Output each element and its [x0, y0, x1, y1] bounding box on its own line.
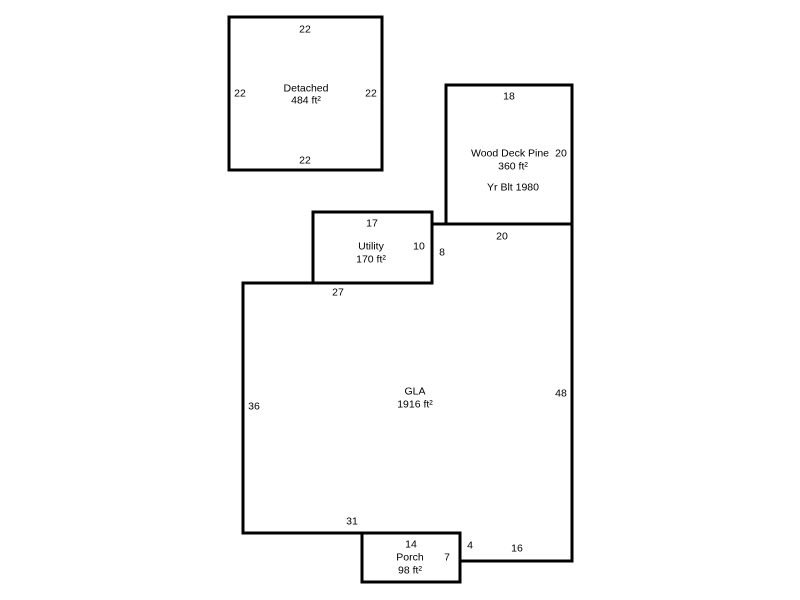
gla-dim-bottom-left: 31 — [346, 516, 358, 529]
gla-dim-step-down: 4 — [467, 540, 473, 553]
utility-dim-right: 10 — [413, 241, 425, 254]
gla-dim-bottom-right: 16 — [511, 543, 523, 556]
porch-dim-top: 14 — [405, 539, 417, 552]
gla-dim-right: 48 — [555, 388, 567, 401]
sketch-canvas — [0, 0, 800, 600]
gla-dim-left: 36 — [248, 401, 260, 414]
wood-deck-dim-top: 18 — [503, 91, 515, 104]
detached-dim-bottom: 22 — [299, 155, 311, 168]
detached-dim-top: 22 — [299, 24, 311, 37]
porch-dim-right: 7 — [444, 552, 450, 565]
gla-dim-step-up: 8 — [439, 247, 445, 260]
gla-dim-top-left: 27 — [332, 287, 344, 300]
wood-deck-year-note: Yr Blt 1980 — [487, 182, 539, 195]
utility-area-label: 170 ft² — [356, 254, 386, 267]
gla-dim-top-right: 20 — [496, 231, 508, 244]
utility-name-label: Utility — [358, 241, 384, 254]
wood-deck-area-label: 360 ft² — [498, 161, 528, 174]
utility-dim-top: 17 — [366, 218, 378, 231]
wood-deck-dim-right: 20 — [555, 148, 567, 161]
wood-deck-name-label: Wood Deck Pine — [471, 148, 549, 161]
detached-dim-left: 22 — [234, 88, 246, 101]
porch-area-label: 98 ft² — [398, 565, 422, 578]
detached-area-label: 484 ft² — [291, 95, 321, 108]
gla-area-label: 1916 ft² — [397, 399, 433, 412]
detached-dim-right: 22 — [365, 88, 377, 101]
porch-name-label: Porch — [396, 552, 423, 565]
floorplan-sketch: 22 22 22 22 Detached 484 ft² 18 Wood Dec… — [0, 0, 800, 600]
gla-name-label: GLA — [404, 386, 425, 399]
